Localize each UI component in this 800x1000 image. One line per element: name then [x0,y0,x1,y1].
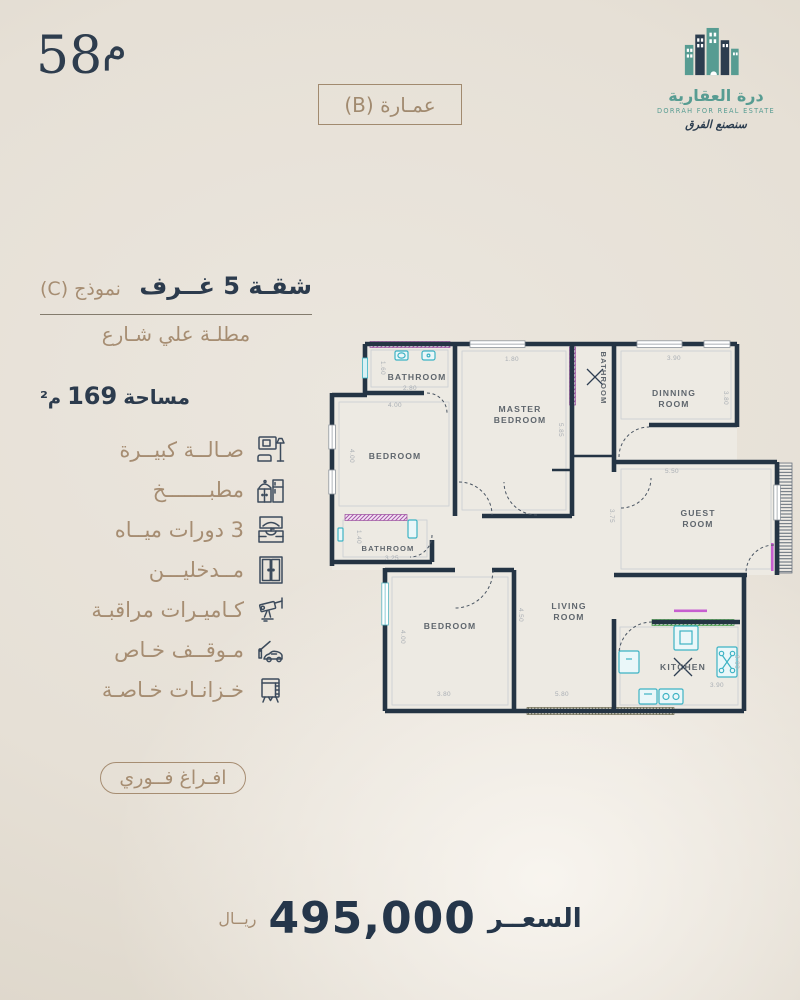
guest-door-marker [771,543,774,571]
room-label-master-2: BEDROOM [494,415,547,425]
dim-3-80-a: 3.80 [722,391,729,405]
room-label-guest-1: GUEST [680,508,715,518]
dim-1-40: 1.40 [355,530,362,544]
feature-label: مــدخليـــن [149,558,244,582]
title-divider [40,314,312,315]
dim-4-00-b: 4.00 [399,630,406,644]
logo-english-name: DORRAH FOR REAL ESTATE [657,107,775,115]
dim-5-50: 5.50 [665,468,679,475]
unit-number: 58م [36,26,129,86]
availability-badge: افـراغ فــوري [100,762,246,794]
feature-row-parking: مـوقــف خـاص [40,630,286,670]
price-label: السعــر [488,904,582,934]
features-list: صـالــة كبيــرة مطبـــــــخ 3 دورات ميــ… [40,430,286,710]
listing-title: شقـة 5 غــرف [139,272,312,300]
cctv-camera-icon [256,595,286,625]
dim-1-60: 1.60 [379,361,386,375]
dim-4-50: 4.50 [517,608,524,622]
room-label-dining-1: DINNING [652,388,696,398]
room-label-master-1: MASTER [499,404,542,414]
price-line: السعــر 495,000 ريــال [180,893,620,944]
dim-3-90-a: 3.90 [667,355,681,362]
price-currency: ريــال [218,909,256,928]
feature-row-tanks: خـزانـات خـاصـة [40,670,286,710]
feature-row-entrances: مــدخليـــن [40,550,286,590]
building-badge-label: عمـارة (B) [344,93,435,117]
listing-subtitle: مطلـة علي شـارع [40,322,312,346]
logo-tagline: سنصنع الفرق [685,118,747,131]
room-label-kitchen: KITCHEN [660,662,706,672]
dim-3-00: 3.00 [733,655,740,669]
dim-3-90-b: 3.90 [710,682,724,689]
building-badge: عمـارة (B) [318,84,462,125]
room-label-bedroom-left: BEDROOM [369,451,422,461]
living-room-icon [256,435,286,465]
dim-3-75: 3.75 [608,509,615,523]
area-unit: م² [40,388,61,409]
dim-4-00-left: 4.00 [348,449,355,463]
room-label-bathroom-mid: BATHROOM [599,352,608,405]
stairs-strip [779,463,792,573]
double-door-icon [256,555,286,585]
bathroom-vanity-icon [256,515,286,545]
feature-row-cameras: كـاميـرات مراقبـة [40,590,286,630]
dim-3-25: 3.25 [385,555,399,562]
area-label: مساحة [123,385,190,409]
kitchen-door-marker [674,610,707,613]
dim-3-80-b: 3.80 [437,691,451,698]
area-line: مساحة 169 م² [40,382,210,410]
feature-label: مطبـــــــخ [153,478,244,502]
availability-label: افـراغ فــوري [119,767,226,789]
unit-number-value: 58 [36,26,102,86]
buildings-logo-icon [683,26,749,82]
water-tank-icon [256,675,286,705]
room-label-living-1: LIVING [551,601,586,611]
room-label-dining-2: ROOM [658,399,689,409]
listing-title-row: نموذج (C) شقـة 5 غــرف [40,272,312,300]
kitchen-icon [256,475,286,505]
logo-arabic-name: درة العقارية [668,86,763,105]
room-label-guest-2: ROOM [682,519,713,529]
feature-label: صـالــة كبيــرة [119,438,244,462]
feature-label: مـوقــف خـاص [114,638,244,662]
dim-2-80: 2.80 [403,385,417,392]
feature-row-kitchen: مطبـــــــخ [40,470,286,510]
unit-number-suffix: م [102,25,127,71]
dim-4-00-a: 4.00 [388,402,402,409]
dim-5-80: 5.80 [555,691,569,698]
feature-label: خـزانـات خـاصـة [102,678,244,702]
dim-1-80: 1.80 [505,356,519,363]
feature-label: 3 دورات ميــاه [115,518,244,542]
floor-plan: BATHROOM MASTER BEDROOM DINNING ROOM BED… [322,330,794,726]
price-value: 495,000 [268,893,475,944]
floor-plan-drawing: BATHROOM MASTER BEDROOM DINNING ROOM BED… [322,330,794,726]
area-value: 169 [67,382,117,410]
feature-label: كـاميـرات مراقبـة [91,598,244,622]
car-parking-icon [256,635,286,665]
model-label: نموذج (C) [40,278,121,300]
room-label-living-2: ROOM [553,612,584,622]
window-hatch-bathroom-lower [345,515,407,521]
room-label-bedroom-bottom: BEDROOM [424,621,477,631]
feature-row-hall: صـالــة كبيــرة [40,430,286,470]
dim-5-85: 5.85 [557,423,564,437]
room-label-bathroom-lower: BATHROOM [362,544,415,553]
room-label-bathroom-top: BATHROOM [388,372,447,382]
feature-row-bathrooms: 3 دورات ميــاه [40,510,286,550]
company-logo: درة العقارية DORRAH FOR REAL ESTATE سنصن… [656,26,776,131]
